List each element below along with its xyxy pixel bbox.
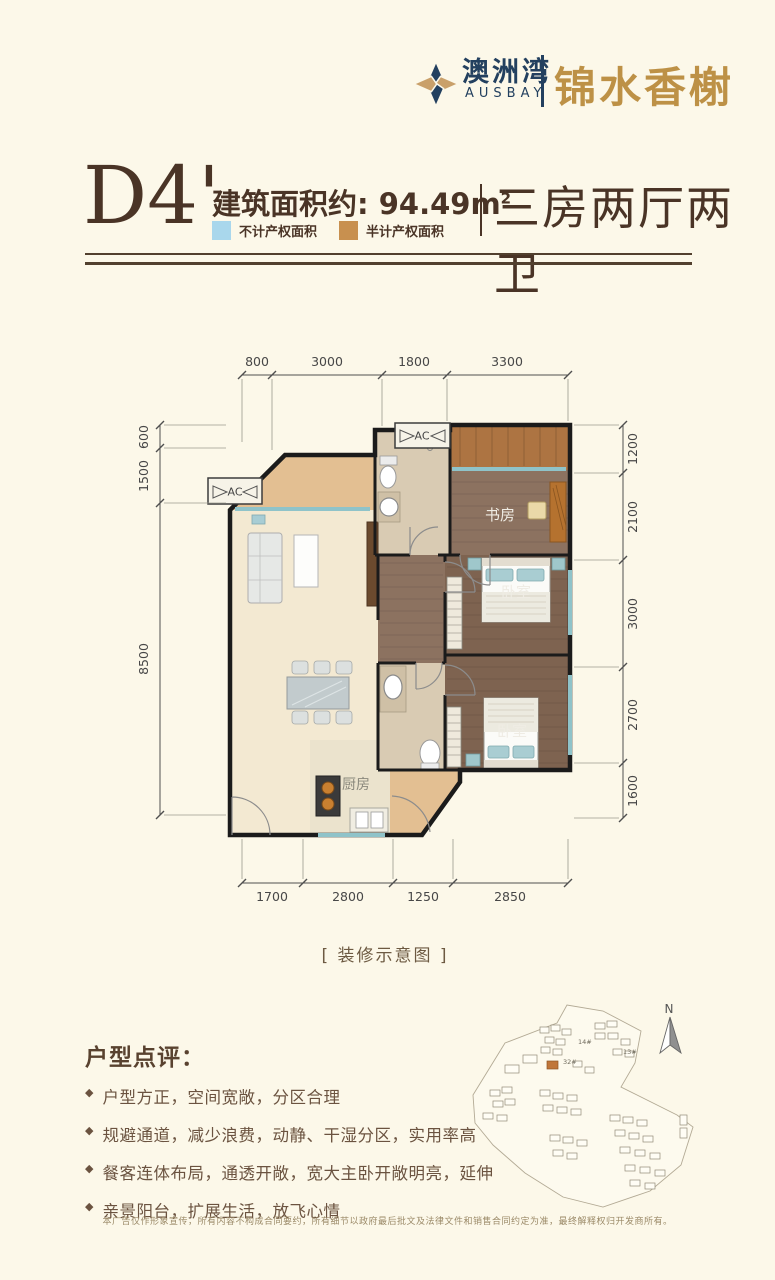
building-label-32: 32# [563, 1058, 577, 1066]
brand-name-cn: 澳洲湾 [462, 50, 552, 89]
dim-bottom-1250: 1250 [407, 889, 439, 904]
project-name: 锦水香榭 [554, 54, 734, 115]
legend-label-half-property: 半计产权面积 [366, 221, 444, 240]
site-boundary [473, 1005, 693, 1207]
review-bullet-1: ◆ 户型方正，空间宽敞，分区合理 [85, 1084, 495, 1108]
highlighted-building [547, 1061, 558, 1069]
flyer-page: 澳洲湾 AUSBAY 锦水香榭 D4' 建筑面积约: 94.49m2 不计产权面… [0, 0, 775, 1280]
review-bullet-3: ◆ 餐客连体布局，通透开敞，宽大主卧开敞明亮，延伸 [85, 1160, 495, 1184]
dim-left-8500: 8500 [136, 643, 151, 675]
diamond-bullet-icon: ◆ [85, 1160, 93, 1178]
diamond-bullet-icon: ◆ [85, 1084, 93, 1102]
room-label-bedroom1: 卧室 [501, 583, 531, 601]
dim-right-1200: 1200 [625, 433, 640, 465]
brand-compass-icon [413, 57, 459, 111]
review-bullet-2-text: 规避通道，减少浪费，动静、干湿分区，实用率高 [102, 1122, 476, 1146]
legend: 不计产权面积 半计产权面积 [212, 221, 444, 240]
double-rule-divider [85, 253, 692, 265]
room-label-study: 书房 [485, 506, 515, 524]
dim-bottom-2850: 2850 [494, 889, 526, 904]
unit-code: D4' [83, 156, 220, 236]
dim-top-3000: 3000 [311, 354, 343, 369]
dim-bottom-1700: 1700 [256, 889, 288, 904]
dim-right-1600: 1600 [625, 775, 640, 807]
ac-label-top: AC [414, 430, 429, 443]
area-label: 建筑面积约: [212, 187, 369, 221]
review-title: 户型点评： [85, 1038, 495, 1072]
room-fills [230, 425, 570, 835]
dim-left-1500: 1500 [136, 460, 151, 492]
review-section: 户型点评： ◆ 户型方正，空间宽敞，分区合理 ◆ 规避通道，减少浪费，动静、干湿… [85, 1038, 495, 1236]
area-value: 94.49m [379, 187, 501, 221]
layout-description: 三房两厅两卫 [494, 172, 775, 304]
review-bullet-2: ◆ 规避通道，减少浪费，动静、干湿分区，实用率高 [85, 1122, 495, 1146]
ac-label-left: AC [227, 486, 242, 499]
review-bullet-3-text: 餐客连体布局，通透开敞，宽大主卧开敞明亮，延伸 [102, 1160, 493, 1184]
north-label: N [665, 1002, 674, 1016]
building-label-13: 13# [623, 1048, 637, 1056]
dim-left-600: 600 [136, 425, 151, 449]
dim-right-2700: 2700 [625, 699, 640, 731]
legend-label-non-property: 不计产权面积 [239, 221, 317, 240]
ac-box-left: AC [208, 478, 262, 504]
disclaimer-text: 本广告仅作形象宣传，所有内容不构成合同要约，所有细节以政府最后批文及法律文件和销… [0, 1214, 775, 1227]
dim-top-3300: 3300 [491, 354, 523, 369]
review-bullet-1-text: 户型方正，空间宽敞，分区合理 [102, 1084, 340, 1108]
dim-top-1800: 1800 [398, 354, 430, 369]
dim-top-800: 800 [245, 354, 269, 369]
plan-caption: [ 装修示意图 ] [260, 941, 510, 966]
room-label-kitchen: 厨房 [342, 777, 370, 793]
dim-bottom-2800: 2800 [332, 889, 364, 904]
diamond-bullet-icon: ◆ [85, 1198, 93, 1216]
ac-box-top: AC [395, 423, 450, 448]
logo-divider [541, 55, 544, 107]
dim-right-3000: 3000 [625, 598, 640, 630]
floor-plan: AC AC 书房 卧室 卧室 厨房 [100, 330, 710, 930]
diamond-bullet-icon: ◆ [85, 1122, 93, 1140]
title-divider [480, 184, 482, 236]
legend-swatch-orange [339, 221, 358, 240]
brand-name-en: AUSBAY [465, 86, 546, 101]
room-label-bedroom2: 卧室 [497, 722, 527, 740]
dim-right-2100: 2100 [625, 501, 640, 533]
building-label-14: 14# [578, 1038, 592, 1046]
north-compass-icon: N [660, 1002, 681, 1053]
area-text: 建筑面积约: 94.49m2 [212, 181, 511, 223]
legend-swatch-blue [212, 221, 231, 240]
